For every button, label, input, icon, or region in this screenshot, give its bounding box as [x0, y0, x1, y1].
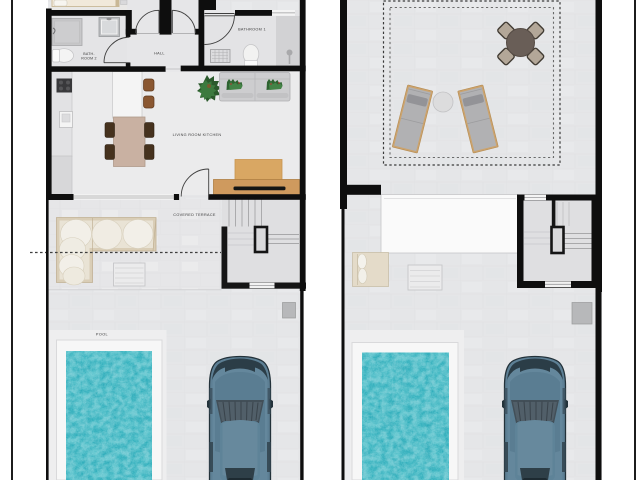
- svg-text:BATHROOM 1: BATHROOM 1: [238, 28, 266, 32]
- svg-text:LIVING ROOM KITCHEN: LIVING ROOM KITCHEN: [173, 133, 222, 137]
- svg-text:ROOM 2: ROOM 2: [81, 57, 96, 61]
- svg-text:BATH-: BATH-: [83, 52, 95, 56]
- svg-text:POOL: POOL: [96, 333, 108, 337]
- svg-text:COVERED TERRACE: COVERED TERRACE: [173, 213, 216, 217]
- svg-text:HALL: HALL: [154, 52, 165, 56]
